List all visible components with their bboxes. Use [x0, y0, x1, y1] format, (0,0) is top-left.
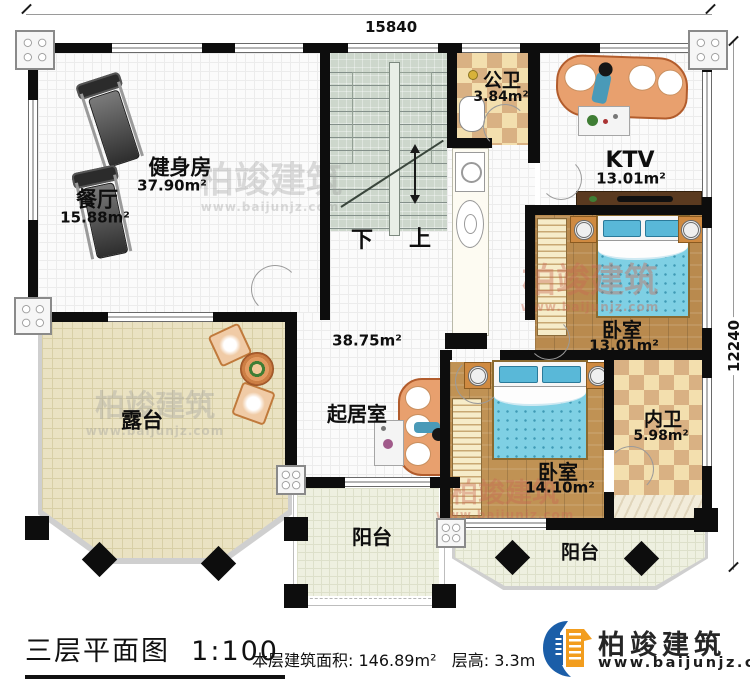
wardrobe — [452, 398, 482, 516]
window — [348, 43, 438, 53]
window — [28, 100, 38, 220]
nightstand — [678, 216, 703, 243]
corner-ornament — [436, 518, 466, 548]
stair-arrow-down-icon — [410, 195, 420, 204]
room-area-gym: 37.90m² — [137, 179, 207, 194]
door-arc — [483, 104, 527, 148]
wall — [525, 205, 712, 215]
dimension-height: 12240 — [725, 317, 743, 375]
dimension-line-top — [26, 14, 712, 15]
title-underline — [25, 675, 247, 677]
title-block: 三层平面图 1:100 本层建筑面积: 146.89m² 层高: 3.3m 柏竣… — [0, 615, 750, 685]
floor-height-label: 层高: — [452, 651, 489, 670]
room-area-dining: 15.88m² — [60, 211, 130, 226]
nightstand — [570, 216, 597, 243]
coffee-table-icon — [578, 106, 630, 136]
room-label-gym: 健身房 — [149, 158, 212, 179]
wall — [430, 477, 460, 488]
room-label-public-bath: 公卫 — [483, 72, 521, 91]
corner-ornament — [688, 30, 728, 70]
light-icon — [468, 70, 478, 80]
stair-label-up: 上 — [409, 229, 431, 251]
door-arc — [528, 318, 570, 360]
stair-label-down: 下 — [351, 230, 373, 252]
wall — [445, 333, 487, 349]
door-arc — [251, 265, 299, 313]
column — [25, 516, 49, 540]
coffee-table-icon — [374, 420, 404, 466]
column — [694, 508, 718, 532]
room-label-living: 起居室 — [327, 404, 387, 424]
floor-plan-page: 柏竣建筑 www.baijunjz.com 柏竣建筑 www.baijunjz.… — [0, 0, 750, 685]
round-table-icon — [240, 352, 274, 386]
ensuite-shower — [614, 495, 702, 519]
brand-url: www.baijunjz.com — [598, 655, 750, 671]
plan-title-text: 三层平面图 — [25, 636, 170, 667]
tv-icon — [617, 196, 673, 202]
wall — [528, 43, 540, 148]
window — [702, 378, 712, 466]
room-area-public-bath: 3.84m² — [473, 90, 528, 104]
wall — [440, 350, 450, 528]
dimension-width: 15840 — [362, 18, 420, 36]
dimension-tick — [21, 4, 32, 15]
plan-info: 本层建筑面积: 146.89m² 层高: 3.3m — [252, 647, 535, 671]
corner-ornament — [276, 465, 306, 495]
window — [112, 43, 202, 53]
wall — [447, 43, 457, 148]
lamp-icon — [574, 220, 594, 240]
sink-icon — [456, 200, 484, 248]
wall — [285, 312, 297, 488]
balcony-left-dash — [300, 598, 436, 599]
door-arc — [455, 358, 501, 404]
room-label-terrace: 露台 — [121, 411, 163, 432]
plan-title: 三层平面图 1:100 — [25, 629, 285, 679]
wall — [447, 138, 492, 148]
stair-stringer — [389, 62, 400, 236]
floor-height-value: 3.3m — [494, 651, 535, 670]
dimension-line-right — [733, 42, 734, 570]
room-area-bedroom2: 14.10m² — [525, 481, 595, 496]
room-label-dining: 餐厅 — [76, 190, 118, 211]
dimension-tick — [705, 4, 716, 15]
column — [432, 584, 456, 608]
window — [345, 477, 430, 488]
window — [235, 43, 303, 53]
window — [702, 72, 712, 197]
corner-ornament — [14, 297, 52, 335]
column — [284, 584, 308, 608]
wall — [320, 43, 330, 320]
room-area-ktv: 13.01m² — [596, 172, 666, 187]
room-label-balcony-left: 阳台 — [352, 527, 392, 547]
wall — [604, 360, 614, 450]
corner-ornament — [15, 30, 55, 70]
room-area-living: 38.75m² — [332, 334, 402, 349]
room-label-balcony-right: 阳台 — [561, 544, 599, 563]
washing-machine-icon — [455, 152, 485, 192]
brand-logo-icon — [540, 619, 596, 679]
window — [462, 43, 520, 53]
bed-icon — [596, 214, 690, 318]
room-area-ensuite: 5.98m² — [633, 429, 688, 443]
floor-area-label: 本层建筑面积: — [252, 651, 353, 670]
window — [702, 228, 712, 328]
floor-area-value: 146.89m² — [359, 651, 437, 670]
room-area-bedroom1: 13.01m² — [589, 339, 659, 354]
stair-flow-line — [414, 152, 416, 196]
wall — [525, 205, 535, 320]
room-label-ensuite: 内卫 — [644, 411, 682, 430]
wall — [528, 138, 540, 163]
column — [284, 517, 308, 541]
door-arc — [608, 446, 654, 492]
window — [464, 518, 546, 530]
door-arc — [540, 158, 582, 200]
window — [108, 312, 213, 322]
bed-icon — [492, 360, 588, 460]
stair-arrow-up-icon — [410, 144, 420, 153]
window — [600, 43, 688, 53]
